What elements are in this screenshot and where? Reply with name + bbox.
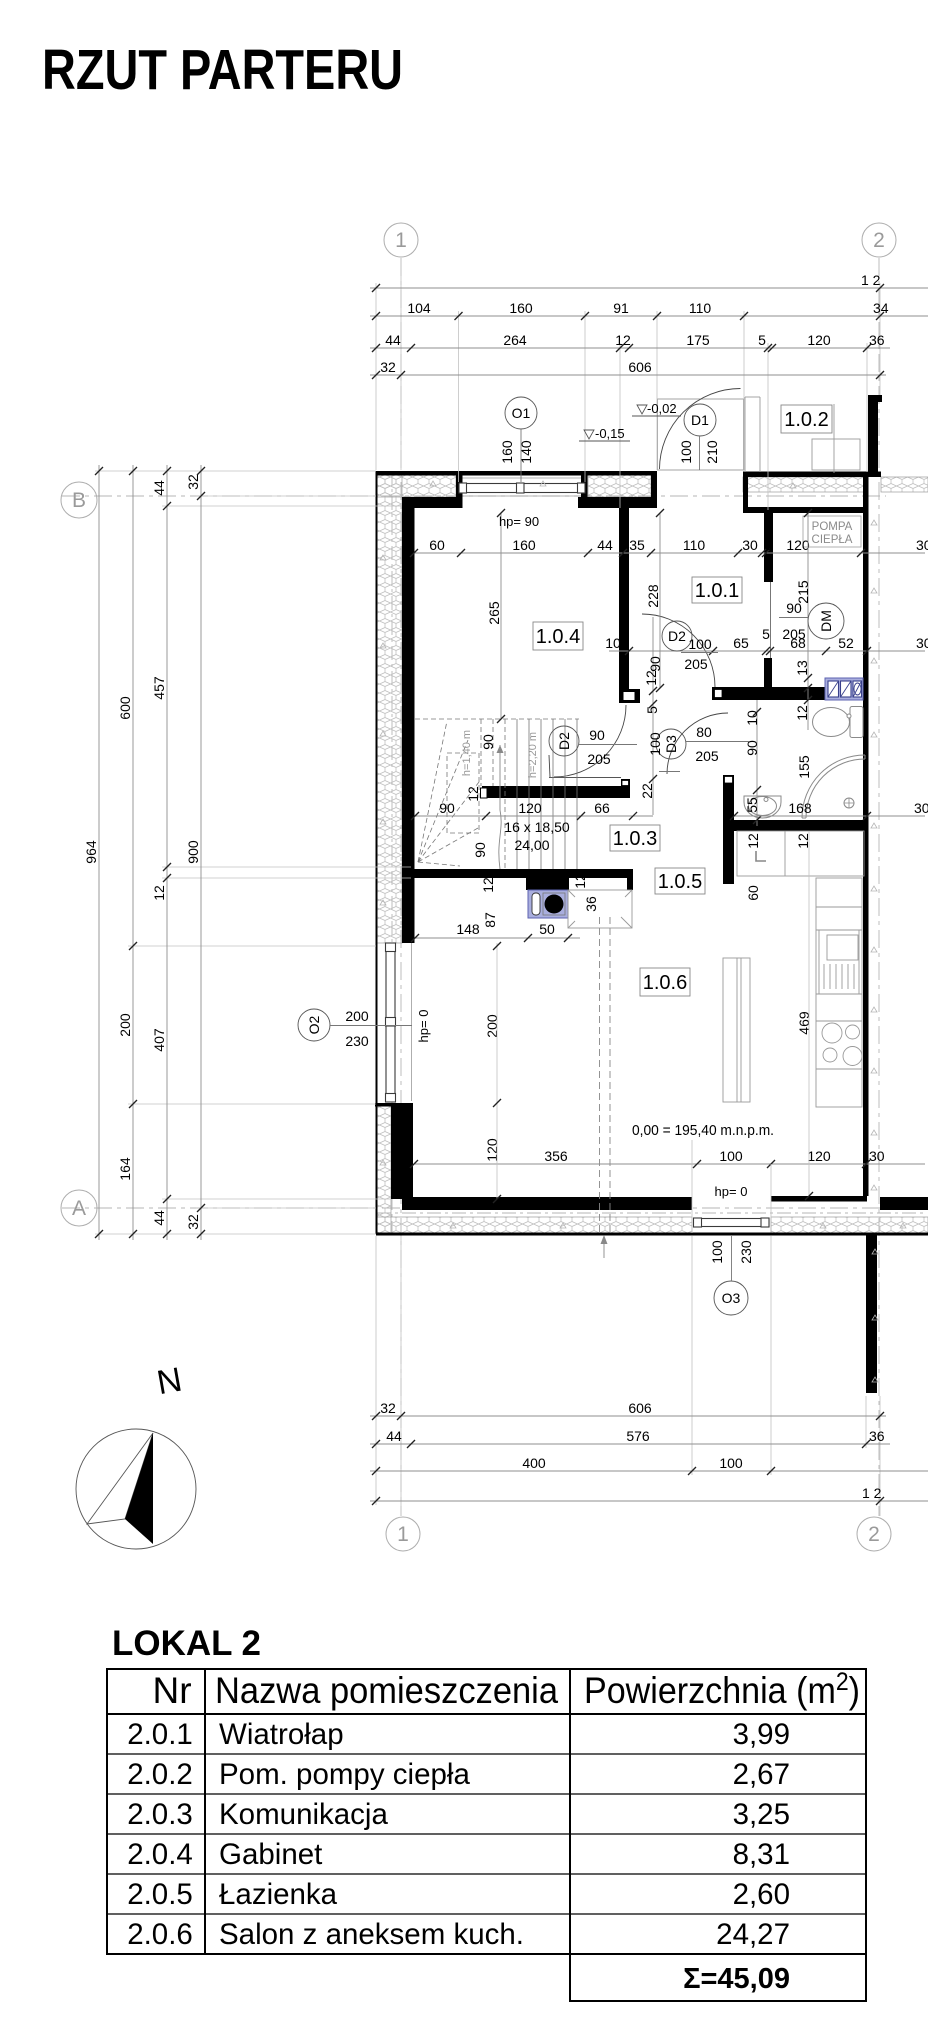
svg-text:O1: O1 [512,405,531,421]
svg-text:230: 230 [738,1240,754,1264]
svg-text:Komunikacja: Komunikacja [219,1798,388,1831]
svg-text:hp= 0: hp= 0 [715,1184,748,1199]
svg-text:2.0.1: 2.0.1 [127,1718,193,1751]
svg-text:66: 66 [594,800,610,816]
svg-text:Nazwa pomieszczenia: Nazwa pomieszczenia [215,1670,558,1711]
svg-text:91: 91 [613,300,629,316]
svg-text:hp= 90: hp= 90 [499,514,539,529]
svg-text:30: 30 [742,537,758,553]
svg-text:1 2: 1 2 [862,1485,882,1501]
svg-text:12: 12 [643,670,659,686]
svg-text:CIEPŁA: CIEPŁA [812,534,853,546]
svg-text:160: 160 [499,440,515,464]
svg-text:120: 120 [807,1148,831,1164]
svg-text:100: 100 [688,636,712,652]
svg-text:356: 356 [544,1148,568,1164]
svg-text:h=1,40 m: h=1,40 m [461,730,473,776]
svg-text:2.0.2: 2.0.2 [127,1758,193,1791]
svg-text:90: 90 [647,656,663,672]
svg-text:POMPA: POMPA [812,521,853,533]
svg-text:44: 44 [151,1210,167,1226]
svg-text:12: 12 [465,786,481,802]
svg-text:90: 90 [744,740,760,756]
svg-text:264: 264 [503,332,527,348]
svg-text:16 x 18,50: 16 x 18,50 [504,819,570,835]
svg-text:DM: DM [818,610,834,632]
svg-text:34: 34 [873,300,889,316]
svg-text:B: B [72,489,86,512]
svg-text:12: 12 [480,877,496,893]
svg-text:Salon z aneksem kuch.: Salon z aneksem kuch. [219,1918,524,1951]
svg-text:30: 30 [916,537,928,553]
svg-text:44: 44 [597,537,613,553]
svg-text:100: 100 [719,1455,743,1471]
svg-text:44: 44 [151,480,167,496]
svg-text:1.0.1: 1.0.1 [695,580,739,602]
svg-text:Gabinet: Gabinet [219,1838,322,1871]
svg-text:1.0.3: 1.0.3 [613,828,657,850]
svg-text:576: 576 [626,1428,650,1444]
svg-text:2.0.3: 2.0.3 [127,1798,193,1831]
svg-text:265: 265 [486,601,502,625]
svg-text:h=2,20 m: h=2,20 m [527,732,539,778]
svg-text:12: 12 [794,705,810,721]
svg-text:2.0.5: 2.0.5 [127,1878,193,1911]
svg-text:3,99: 3,99 [733,1718,790,1751]
svg-text:2: 2 [873,229,885,252]
svg-text:32: 32 [185,474,201,490]
svg-text:100: 100 [678,440,694,464]
svg-text:D2: D2 [668,628,686,644]
svg-text:205: 205 [684,656,708,672]
svg-text:90: 90 [589,727,605,743]
svg-text:D2: D2 [556,732,572,750]
svg-text:O2: O2 [306,1015,322,1034]
svg-text:44: 44 [385,332,401,348]
svg-text:hp= 0: hp= 0 [416,1010,431,1043]
svg-text:3,25: 3,25 [733,1798,790,1831]
svg-text:1: 1 [397,1523,409,1546]
svg-text:200: 200 [484,1014,500,1038]
svg-text:Σ=45,09: Σ=45,09 [683,1963,790,1995]
svg-text:1: 1 [395,229,407,252]
svg-text:10: 10 [744,710,760,726]
svg-text:-0,02: -0,02 [647,401,677,416]
svg-text:2,67: 2,67 [733,1758,790,1791]
svg-text:110: 110 [689,300,712,316]
svg-text:LOKAL 2: LOKAL 2 [112,1624,261,1663]
svg-text:36: 36 [583,896,599,912]
svg-text:13: 13 [794,660,810,676]
svg-text:120: 120 [518,800,542,816]
svg-text:606: 606 [628,359,652,375]
svg-text:1.0.5: 1.0.5 [658,871,702,893]
svg-text:60: 60 [745,885,761,901]
svg-text:100: 100 [647,732,663,756]
svg-text:44: 44 [386,1428,402,1444]
svg-text:120: 120 [807,332,831,348]
svg-text:104: 104 [407,300,431,316]
svg-text:2.0.4: 2.0.4 [127,1838,193,1871]
svg-text:205: 205 [782,626,806,642]
svg-text:32: 32 [380,359,396,375]
svg-text:D3: D3 [663,735,679,753]
svg-text:400: 400 [522,1455,546,1471]
svg-text:5: 5 [644,706,660,714]
svg-text:12: 12 [615,332,631,348]
svg-text:32: 32 [380,1400,396,1416]
svg-text:2.0.6: 2.0.6 [127,1918,193,1951]
svg-text:30: 30 [869,1148,885,1164]
svg-text:964: 964 [83,840,99,864]
svg-text:200: 200 [117,1013,133,1037]
svg-text:160: 160 [512,537,536,553]
svg-text:55: 55 [744,797,760,813]
svg-text:-0,15: -0,15 [595,426,625,441]
svg-text:24,00: 24,00 [514,837,549,853]
svg-text:175: 175 [686,332,710,348]
svg-text:5: 5 [765,537,773,553]
svg-text:Łazienka: Łazienka [219,1878,338,1911]
svg-text:22: 22 [639,783,655,799]
svg-text:35: 35 [629,537,645,553]
svg-text:Pom. pompy ciepła: Pom. pompy ciepła [219,1758,470,1791]
svg-text:210: 210 [704,440,720,464]
svg-text:RZUT PARTERU: RZUT PARTERU [42,38,403,102]
svg-text:2: 2 [868,1523,880,1546]
svg-text:1.0.6: 1.0.6 [643,972,687,994]
svg-text:90: 90 [480,734,496,750]
svg-text:205: 205 [695,748,719,764]
svg-text:2,60: 2,60 [733,1878,790,1911]
svg-text:12: 12 [572,873,588,889]
svg-text:30: 30 [914,800,928,816]
svg-text:A: A [72,1197,86,1220]
svg-text:600: 600 [117,696,133,720]
svg-text:5: 5 [762,626,770,642]
svg-text:N: N [154,1361,185,1403]
svg-text:52: 52 [838,635,854,651]
svg-text:O3: O3 [722,1290,741,1306]
svg-text:1 2: 1 2 [861,272,881,288]
svg-text:Powierzchnia (m2): Powierzchnia (m2) [584,1668,860,1711]
svg-text:90: 90 [786,600,802,616]
svg-text:100: 100 [719,1148,743,1164]
svg-text:407: 407 [151,1028,167,1052]
svg-text:457: 457 [151,676,167,700]
svg-text:100: 100 [709,1240,725,1264]
svg-text:90: 90 [472,842,488,858]
svg-text:90: 90 [439,800,455,816]
svg-text:D1: D1 [691,412,709,428]
svg-text:168: 168 [788,800,812,816]
svg-text:900: 900 [185,840,201,864]
svg-text:469: 469 [796,1011,812,1035]
svg-text:87: 87 [482,912,498,928]
svg-text:50: 50 [539,921,555,937]
svg-text:606: 606 [628,1400,652,1416]
svg-text:12: 12 [745,833,761,849]
svg-text:60: 60 [429,537,445,553]
svg-text:36: 36 [869,1428,885,1444]
svg-text:1.0.2: 1.0.2 [784,409,828,431]
svg-text:120: 120 [484,1138,500,1162]
svg-text:12: 12 [151,885,167,901]
svg-text:148: 148 [456,921,480,937]
svg-text:200: 200 [345,1008,369,1024]
svg-text:10: 10 [605,635,621,651]
svg-text:228: 228 [645,584,661,608]
svg-text:205: 205 [587,751,611,767]
svg-text:230: 230 [345,1033,369,1049]
svg-text:155: 155 [796,755,812,779]
svg-text:8,31: 8,31 [733,1838,790,1871]
svg-text:160: 160 [509,300,533,316]
svg-text:164: 164 [117,1157,133,1181]
svg-text:65: 65 [733,635,749,651]
svg-text:80: 80 [696,724,712,740]
svg-text:140: 140 [518,440,534,464]
svg-text:0,00 = 195,40 m.n.p.m.: 0,00 = 195,40 m.n.p.m. [632,1122,774,1139]
svg-text:Wiatrołap: Wiatrołap [219,1718,344,1751]
svg-text:110: 110 [683,537,706,553]
svg-text:1.0.4: 1.0.4 [536,626,580,648]
svg-text:30: 30 [916,635,928,651]
svg-text:24,27: 24,27 [716,1918,790,1951]
svg-text:36: 36 [869,332,885,348]
svg-text:120: 120 [786,537,810,553]
svg-text:32: 32 [185,1214,201,1230]
svg-text:5: 5 [758,332,766,348]
svg-text:Nr: Nr [152,1670,191,1711]
